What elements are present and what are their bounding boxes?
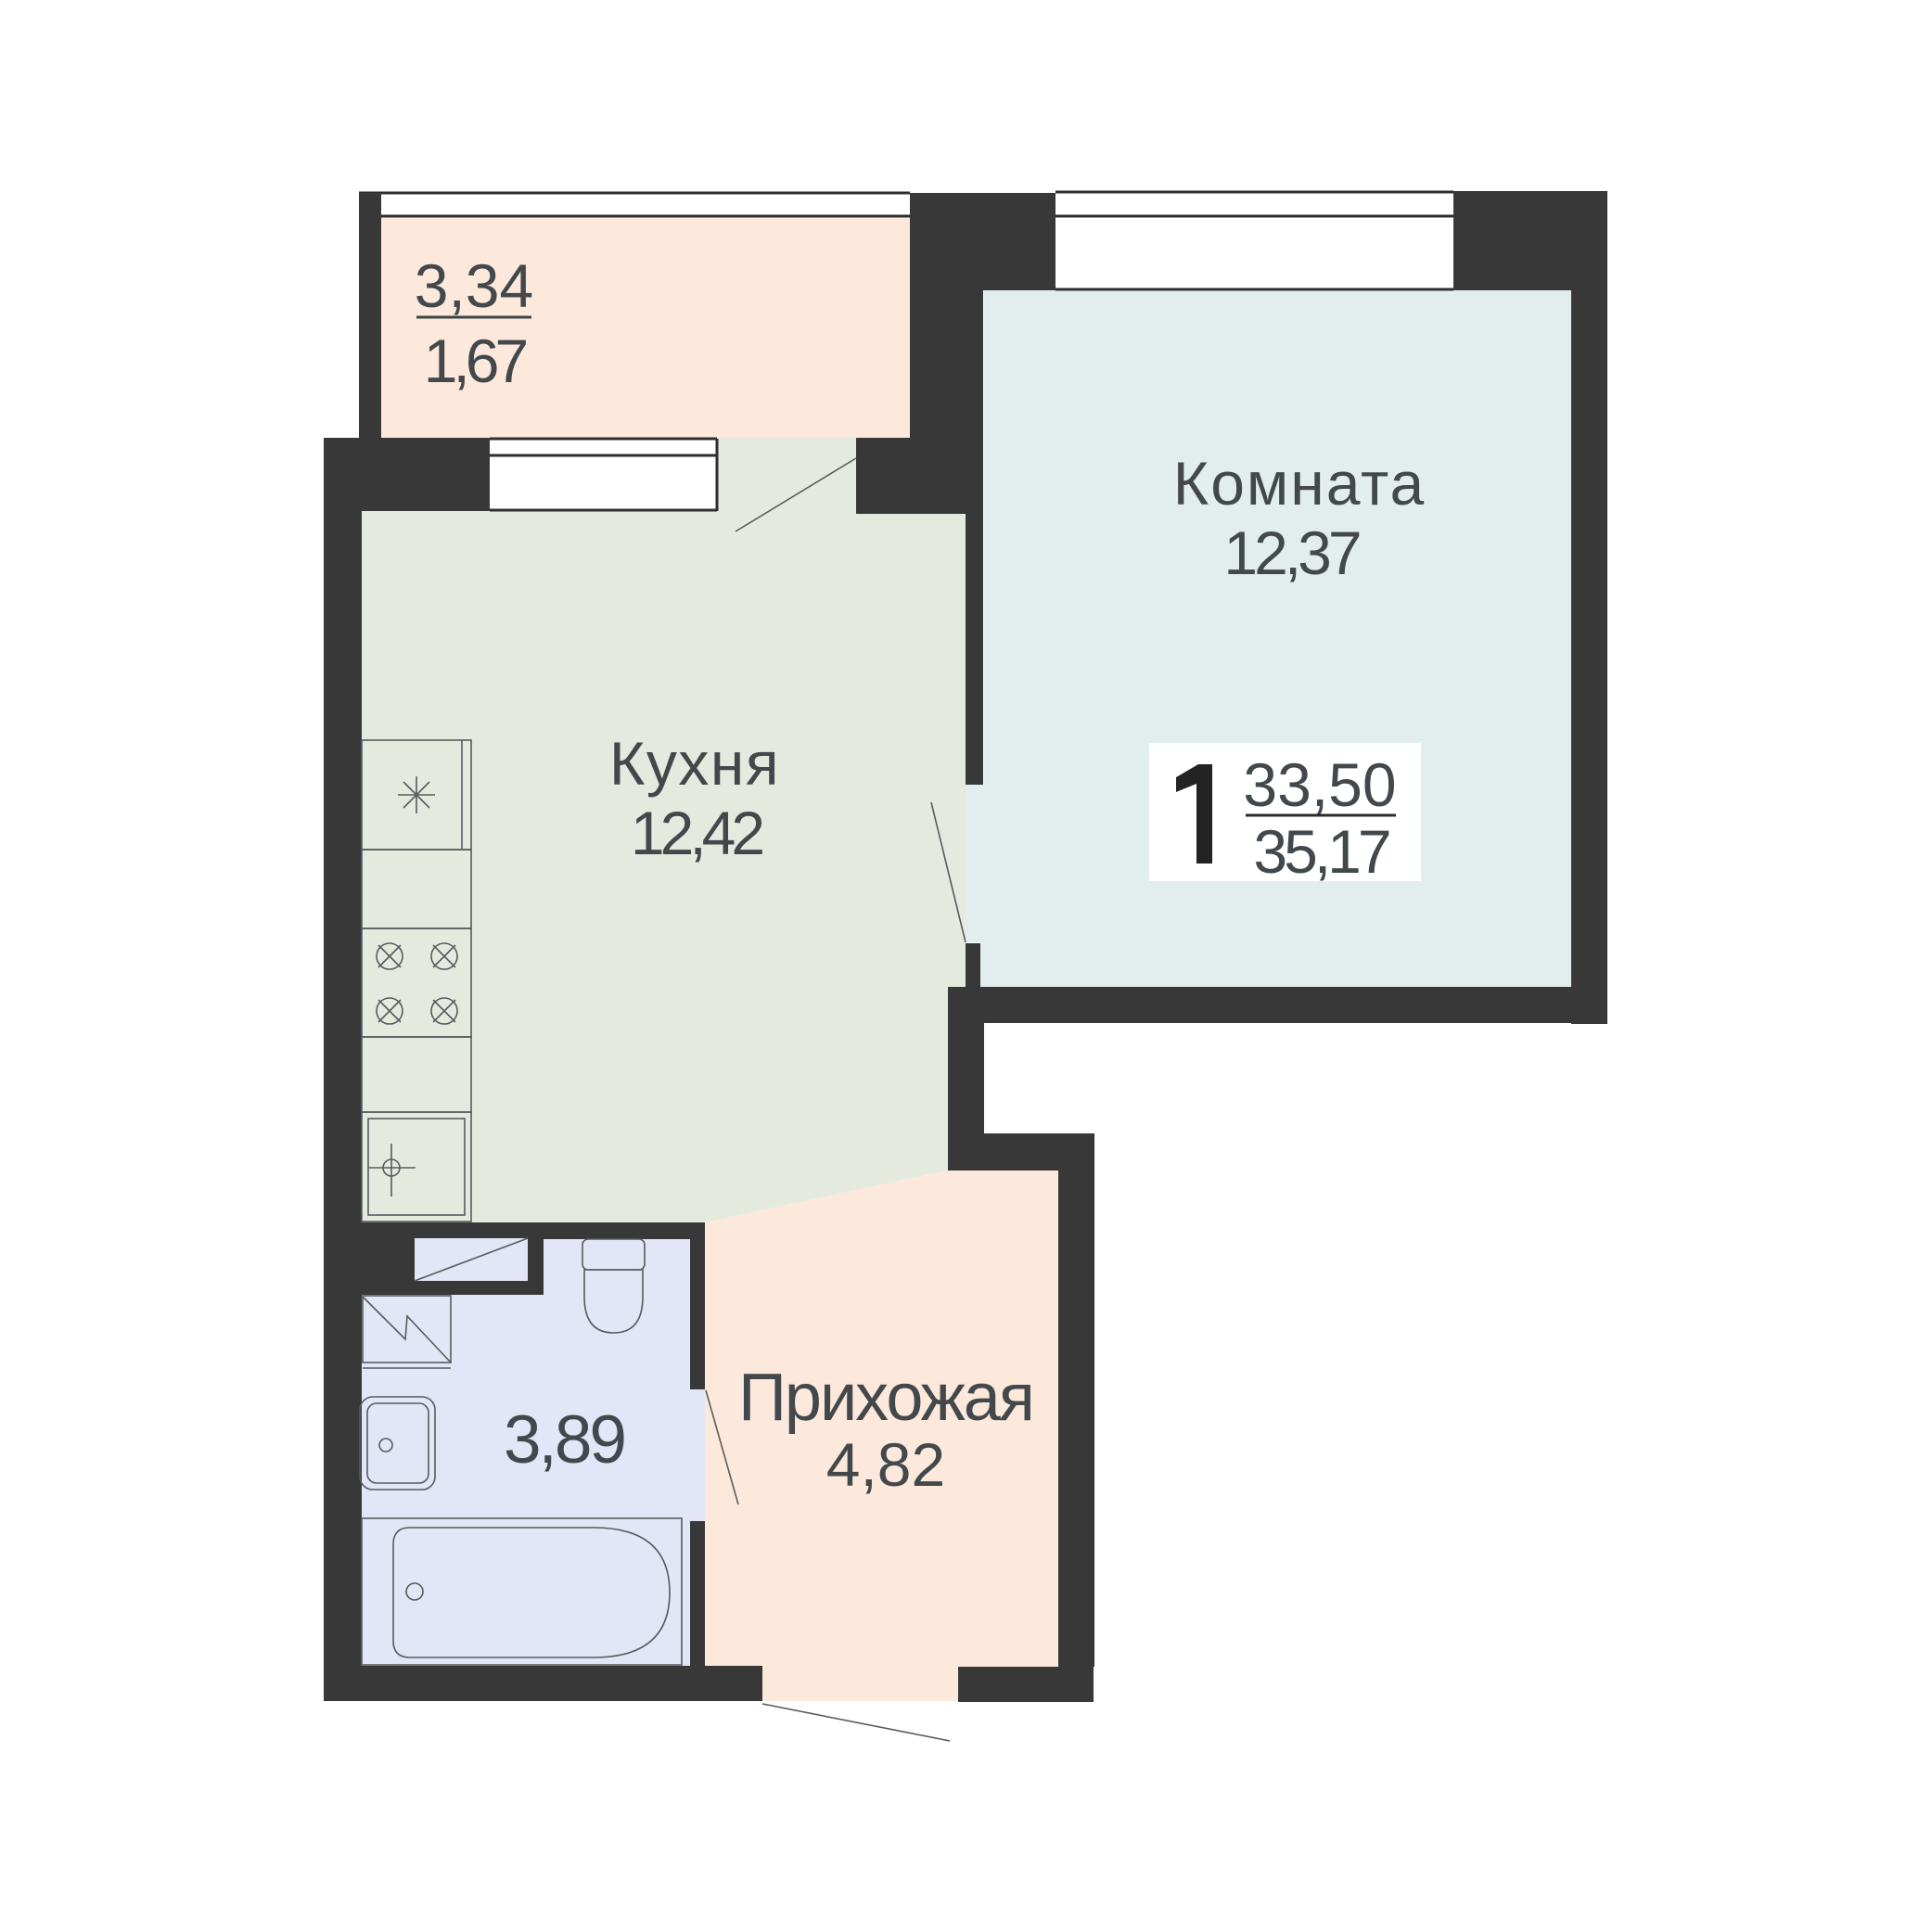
svg-text:4,82: 4,82 [826, 1430, 945, 1499]
svg-text:33,50: 33,50 [1243, 750, 1396, 819]
svg-text:Кухня: Кухня [609, 729, 780, 798]
svg-text:12,37: 12,37 [1223, 518, 1359, 587]
svg-text:3,34: 3,34 [415, 251, 533, 320]
svg-text:1,67: 1,67 [424, 326, 527, 395]
svg-text:35,17: 35,17 [1253, 817, 1388, 886]
svg-text:Прихожая: Прихожая [738, 1361, 1033, 1435]
svg-text:Комната: Комната [1173, 449, 1426, 518]
svg-text:12,42: 12,42 [631, 799, 762, 867]
svg-text:3,89: 3,89 [504, 1402, 624, 1478]
